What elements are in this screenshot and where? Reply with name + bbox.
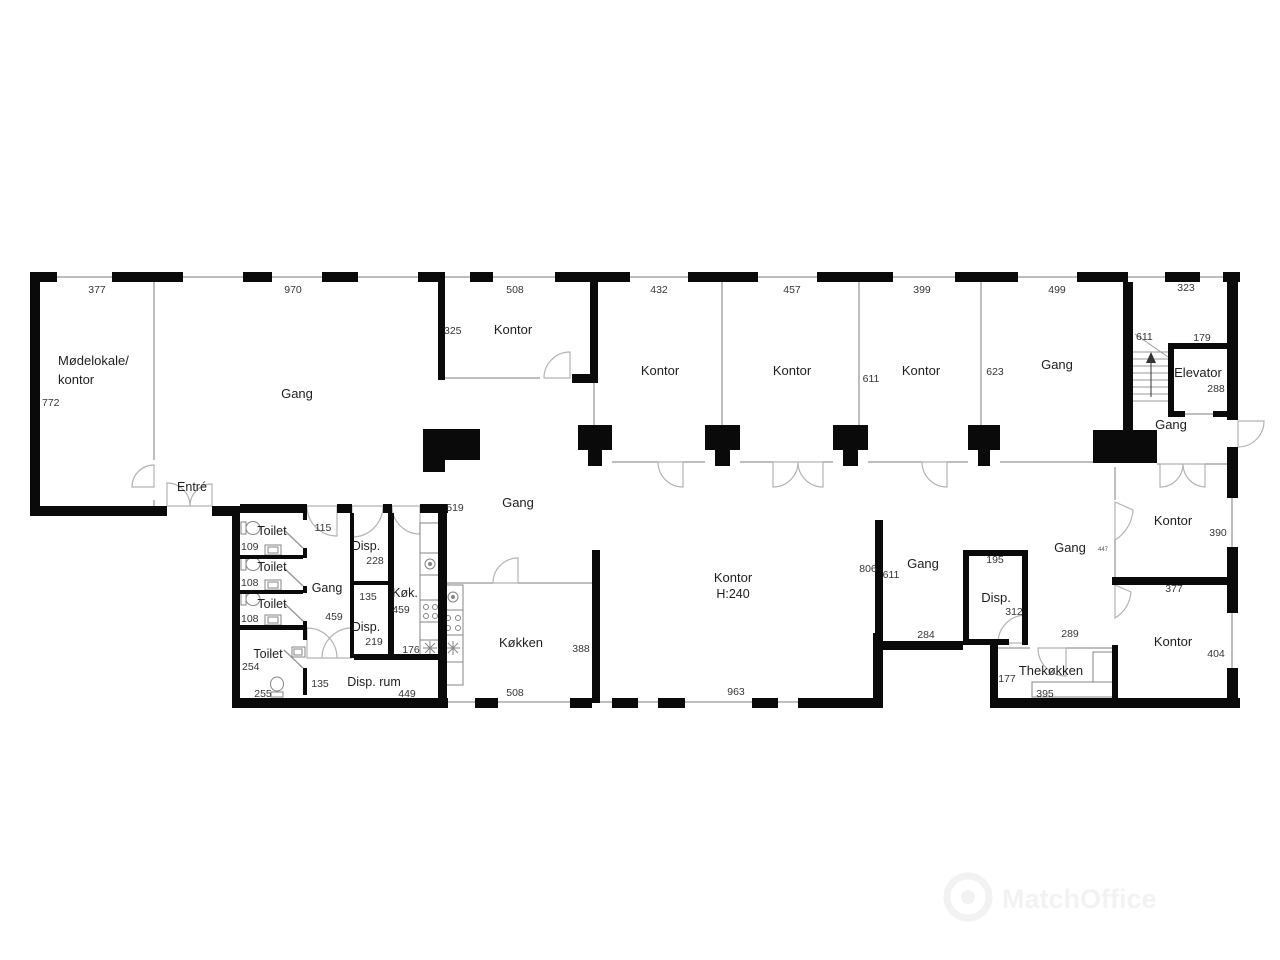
- room-elevator-label: Elevator: [1174, 365, 1222, 380]
- dim-office3-sep: 623: [986, 366, 1004, 378]
- room-office3-label: Kontor: [902, 363, 941, 378]
- dim-disp1-width: 135: [359, 591, 377, 603]
- dim-office2-sep: 611: [863, 373, 880, 385]
- room-kitchen-label: Køkken: [499, 635, 543, 650]
- dim-wc4-num2: 255: [254, 688, 272, 700]
- room-meeting-label-1: Mødelokale/: [58, 353, 129, 368]
- dim-disp3-depth: 312: [1005, 606, 1023, 618]
- room-wc4-label: Toilet: [253, 647, 283, 661]
- entrance-label: Entré: [177, 480, 207, 494]
- dim-disp3-width: 195: [986, 554, 1004, 566]
- watermark-text: MatchOffice: [1002, 884, 1157, 914]
- room-gang-mid-label: Gang: [907, 556, 939, 571]
- dim-tea-kitchen-width: 395: [1036, 688, 1054, 700]
- dim-gang-east-door: 447: [1098, 547, 1109, 553]
- freezer-icon: [446, 641, 460, 655]
- floor-plan-page: 377 970 508 432 457 399 499 323 Mødeloka…: [0, 0, 1280, 960]
- room-office1-label: Kontor: [641, 363, 680, 378]
- room-disp-rum-label: Disp. rum: [347, 675, 400, 689]
- dim-gang-mid-width: 284: [917, 629, 935, 641]
- room-office-e2-label: Kontor: [1154, 634, 1193, 649]
- room-open-office-height: H:240: [716, 587, 749, 601]
- kitchen-door-arc: [493, 558, 518, 583]
- dim-top-5: 457: [783, 284, 801, 296]
- dim-disp-rum-width: 135: [311, 678, 329, 690]
- watermark: MatchOffice: [947, 876, 1157, 918]
- room-disp2-label: Disp.: [352, 620, 380, 634]
- dim-open-office-sep-right: 611: [883, 569, 900, 581]
- dim-wc4-num: 254: [242, 661, 260, 673]
- dim-disp1-depth: 228: [366, 555, 384, 567]
- room-wc2-label: Toilet: [257, 560, 287, 574]
- room-tea-kitchen-label: Thekøkken: [1019, 663, 1083, 678]
- dim-stairwell: 611: [1136, 331, 1153, 343]
- dim-wc3-num: 108: [241, 613, 259, 625]
- dim-top-4: 432: [650, 284, 668, 296]
- room-office-small-label: Kontor: [494, 322, 533, 337]
- stairs: [1133, 334, 1168, 401]
- dim-wc2-num: 108: [241, 577, 259, 589]
- dim-wc-gang-width: 115: [315, 522, 332, 534]
- kok-counter: [420, 523, 440, 655]
- room-hall-label: Gang: [281, 386, 313, 401]
- dim-top-8: 323: [1177, 282, 1195, 294]
- stair-up-arrow: [1146, 352, 1156, 363]
- room-gang-elevator-label: Gang: [1155, 417, 1187, 432]
- office-row-door-arcs: [658, 462, 947, 487]
- room-gang-east-label: Gang: [1054, 540, 1086, 555]
- labels: 377 970 508 432 457 399 499 323 Mødeloka…: [42, 282, 1227, 700]
- freezer-icon: [423, 641, 437, 655]
- dim-top-6: 399: [913, 284, 931, 296]
- room-open-office-label: Kontor: [714, 570, 753, 585]
- dim-meeting-width: 772: [42, 397, 60, 409]
- dim-kok-width: 176: [402, 644, 420, 656]
- office-small-door-arc: [544, 352, 570, 378]
- room-wc3-label: Toilet: [257, 597, 287, 611]
- dim-disp2-depth: 219: [365, 636, 383, 648]
- room-wc1-label: Toilet: [257, 524, 287, 538]
- dim-elevator-width: 179: [1193, 332, 1211, 344]
- dim-top-3: 508: [506, 284, 524, 296]
- meeting-room-door-arc: [132, 465, 154, 487]
- dim-office-e2-depth: 404: [1207, 648, 1225, 660]
- dim-top-1: 377: [88, 284, 106, 296]
- room-corridor-label: Gang: [502, 495, 534, 510]
- dim-kitchen-width: 508: [506, 687, 524, 699]
- dim-office-e1-width: 377: [1165, 583, 1183, 595]
- dim-disp-rum-depth: 449: [398, 688, 416, 700]
- dim-office-e1-depth: 390: [1209, 527, 1227, 539]
- room-disp3-label: Disp.: [981, 590, 1011, 605]
- room-office-e1-label: Kontor: [1154, 513, 1193, 528]
- room-gang-ne-label: Gang: [1041, 357, 1073, 372]
- dim-tea-kitchen-height: 177: [998, 673, 1016, 685]
- room-disp1-label: Disp.: [352, 539, 380, 553]
- dim-corridor-width: 519: [446, 502, 464, 514]
- dim-wc1-num: 109: [241, 541, 259, 553]
- stove-burner-icon: [424, 605, 429, 610]
- dim-top-7: 499: [1048, 284, 1066, 296]
- dim-kitchen-sep: 388: [572, 643, 590, 655]
- dim-tea-kitchen-width-top: 289: [1061, 628, 1079, 640]
- dim-elevator-depth: 288: [1207, 383, 1225, 395]
- room-kok-label: Køk.: [392, 586, 418, 600]
- dim-kok-depth: 459: [392, 604, 410, 616]
- dim-wc-gang-depth: 459: [325, 611, 343, 623]
- watermark-logo-inner-icon: [961, 890, 975, 904]
- dim-office-small-depth: 325: [444, 325, 462, 337]
- room-wc-gang-label: Gang: [312, 581, 343, 595]
- room-office2-label: Kontor: [773, 363, 812, 378]
- room-meeting-label-2: kontor: [58, 372, 95, 387]
- floor-plan-drawing: 377 970 508 432 457 399 499 323 Mødeloka…: [0, 0, 1280, 960]
- dim-open-office-width: 963: [727, 686, 745, 698]
- dim-top-2: 970: [284, 284, 302, 296]
- dim-open-office-sep-left: 806: [859, 563, 877, 575]
